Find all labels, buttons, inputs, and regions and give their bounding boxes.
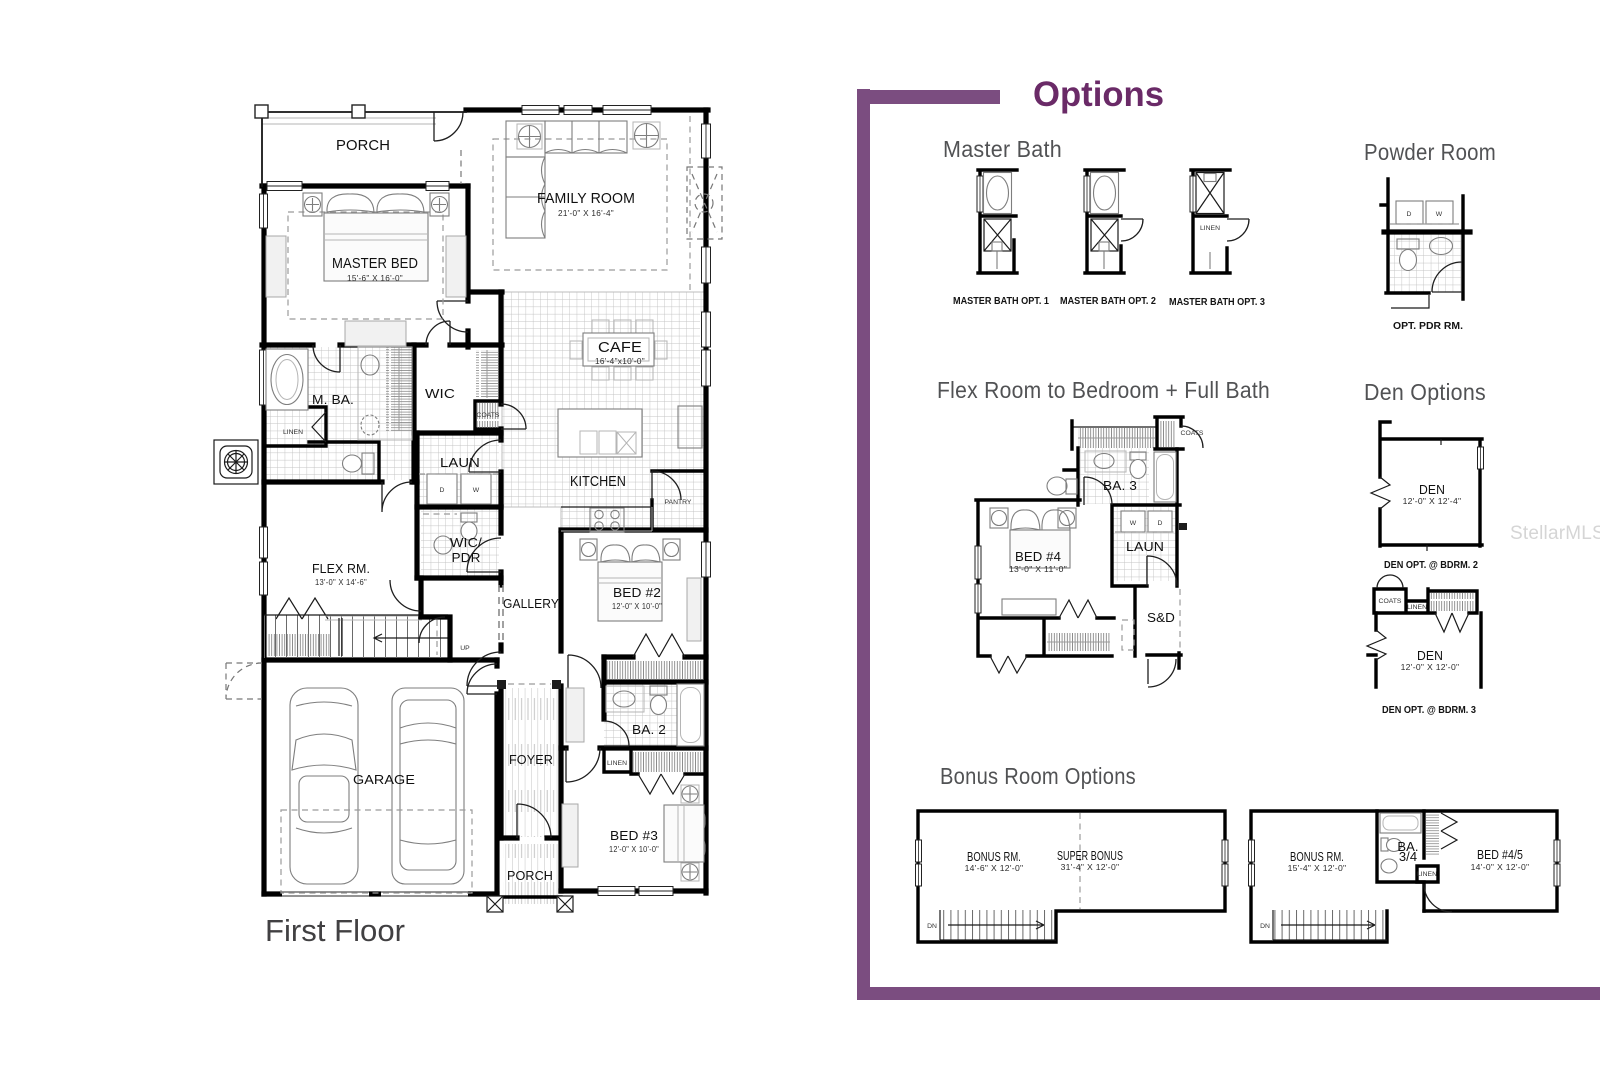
svg-text:S&D: S&D [1147, 610, 1175, 625]
svg-text:BED #4: BED #4 [1015, 549, 1061, 564]
svg-text:StellarMLS: StellarMLS [1510, 523, 1600, 544]
svg-text:W: W [1130, 520, 1137, 527]
svg-text:CAFE: CAFE [598, 340, 642, 356]
svg-text:PORCH: PORCH [336, 138, 390, 154]
svg-text:LAUN: LAUN [1126, 539, 1164, 554]
svg-text:D: D [1407, 211, 1412, 218]
svg-text:BONUS RM.: BONUS RM. [1290, 849, 1344, 864]
svg-text:FLEX RM.: FLEX RM. [312, 561, 370, 576]
svg-text:3/4: 3/4 [1399, 849, 1417, 864]
svg-text:BONUS RM.: BONUS RM. [967, 849, 1021, 864]
svg-text:MASTER BATH OPT. 2: MASTER BATH OPT. 2 [1060, 296, 1156, 307]
svg-text:D: D [440, 487, 445, 494]
svg-text:UP: UP [460, 645, 470, 652]
svg-text:GARAGE: GARAGE [353, 772, 415, 787]
svg-text:LINEN: LINEN [283, 429, 303, 436]
svg-text:PANTRY: PANTRY [665, 499, 692, 506]
svg-text:W: W [473, 487, 480, 494]
svg-text:PDR: PDR [452, 550, 481, 565]
svg-text:21'-0" X 16'-4": 21'-0" X 16'-4" [558, 208, 614, 218]
svg-text:LINEN: LINEN [1407, 604, 1427, 611]
svg-text:BED #3: BED #3 [610, 828, 658, 843]
svg-text:FOYER: FOYER [509, 752, 553, 767]
svg-text:16'-4"x10'-0": 16'-4"x10'-0" [595, 356, 645, 366]
svg-text:15'-6" X 16'-0": 15'-6" X 16'-0" [347, 273, 403, 283]
svg-text:KITCHEN: KITCHEN [570, 474, 626, 490]
svg-text:14'-0" X 12'-0": 14'-0" X 12'-0" [1471, 862, 1530, 872]
svg-text:D: D [1158, 520, 1163, 527]
svg-text:BED #4/5: BED #4/5 [1477, 847, 1523, 862]
svg-text:COATS: COATS [1181, 430, 1204, 437]
svg-text:FAMILY ROOM: FAMILY ROOM [537, 191, 635, 207]
svg-text:13'-0" X 11'-0": 13'-0" X 11'-0" [1009, 564, 1067, 574]
svg-text:Flex Room to Bedroom + Full Ba: Flex Room to Bedroom + Full Bath [937, 377, 1270, 403]
svg-text:DN: DN [1260, 923, 1270, 930]
svg-text:DEN: DEN [1417, 648, 1443, 663]
svg-text:12'-0" X 12'-4": 12'-0" X 12'-4" [1403, 496, 1462, 506]
svg-text:Master Bath: Master Bath [943, 136, 1062, 162]
svg-text:BA. 2: BA. 2 [632, 722, 666, 737]
svg-text:First Floor: First Floor [265, 913, 405, 948]
svg-text:BA. 3: BA. 3 [1103, 478, 1137, 493]
svg-text:LINEN: LINEN [607, 760, 627, 767]
svg-text:WIC/: WIC/ [450, 535, 482, 550]
svg-text:OPT. PDR RM.: OPT. PDR RM. [1393, 321, 1463, 332]
svg-text:31'-4" X 12'-0": 31'-4" X 12'-0" [1061, 862, 1120, 872]
svg-text:SUPER BONUS: SUPER BONUS [1057, 848, 1123, 863]
svg-text:MASTER BATH OPT. 3: MASTER BATH OPT. 3 [1169, 297, 1265, 308]
svg-text:14'-6" X 12'-0": 14'-6" X 12'-0" [965, 863, 1024, 873]
svg-text:MASTER BED: MASTER BED [332, 256, 418, 272]
svg-text:W: W [1436, 211, 1443, 218]
svg-text:12'-0" X 12'-0": 12'-0" X 12'-0" [1401, 662, 1460, 672]
svg-text:12'-0" X 10'-0": 12'-0" X 10'-0" [612, 601, 662, 611]
svg-text:12'-0" X 10'-0": 12'-0" X 10'-0" [609, 844, 659, 854]
svg-text:Den Options: Den Options [1364, 379, 1486, 405]
svg-text:Powder Room: Powder Room [1364, 139, 1496, 165]
svg-text:13'-0" X 14'-6": 13'-0" X 14'-6" [315, 577, 367, 587]
svg-text:M. BA.: M. BA. [312, 392, 354, 407]
svg-text:DEN OPT. @ BDRM. 3: DEN OPT. @ BDRM. 3 [1382, 705, 1477, 716]
svg-text:DN: DN [927, 923, 937, 930]
svg-text:DEN OPT. @ BDRM. 2: DEN OPT. @ BDRM. 2 [1384, 560, 1479, 571]
svg-text:15'-4" X 12'-0": 15'-4" X 12'-0" [1288, 863, 1347, 873]
svg-text:BED #2: BED #2 [613, 585, 661, 600]
svg-text:Options: Options [1033, 75, 1164, 114]
svg-text:COATS: COATS [1379, 598, 1402, 605]
svg-text:WIC: WIC [425, 386, 455, 401]
svg-text:MASTER BATH OPT. 1: MASTER BATH OPT. 1 [953, 296, 1049, 307]
svg-text:DEN: DEN [1419, 482, 1445, 497]
svg-text:LINEN: LINEN [1417, 871, 1437, 878]
svg-text:GALLERY: GALLERY [503, 596, 559, 611]
svg-text:LAUN: LAUN [440, 455, 480, 470]
svg-text:Bonus Room Options: Bonus Room Options [940, 763, 1136, 789]
svg-text:LINEN: LINEN [1200, 225, 1220, 232]
svg-text:COATS: COATS [477, 412, 500, 419]
svg-text:PORCH: PORCH [507, 868, 553, 883]
